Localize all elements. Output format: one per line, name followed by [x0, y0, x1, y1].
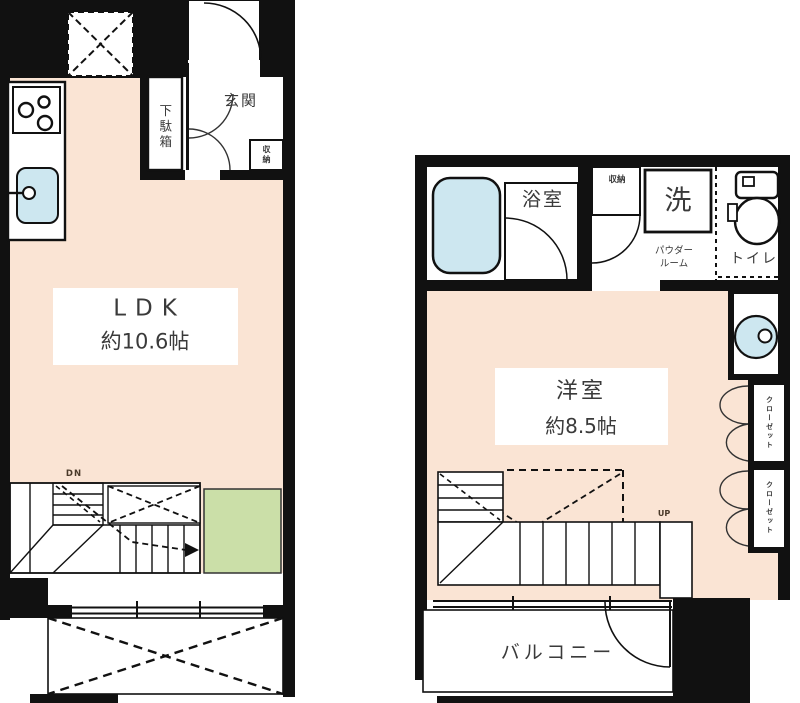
powder-room-label-1: パウダー	[655, 246, 693, 256]
entrance-door	[188, 0, 261, 66]
closet-1-label: クローゼット	[766, 396, 773, 450]
green-mat	[204, 489, 281, 573]
laundry-label: 洗	[665, 188, 692, 215]
bathtub	[433, 178, 500, 273]
toilet-bowl	[735, 198, 779, 244]
void-area	[30, 618, 283, 703]
toilet-label: トイレ	[730, 252, 778, 266]
shaft-hatch	[68, 12, 133, 76]
washbasin	[728, 288, 784, 380]
floor-plan-canvas: LDK 約10.6帖 玄関 下駄箱 収納 DN 浴室 収納 洗 パウダー ルーム…	[0, 0, 800, 703]
ldk-room-size: 約10.6帖	[101, 332, 190, 353]
stairs-down-label: DN	[66, 470, 82, 479]
powder-room-label-2: ルーム	[660, 259, 688, 269]
faucet	[23, 187, 35, 199]
closet-2-label: クローゼット	[766, 481, 773, 535]
kitchen-counter	[8, 82, 65, 240]
shoe-cabinet-label: 下駄箱	[158, 104, 171, 151]
entrance-storage-label: 収納	[262, 145, 270, 165]
balcony-label: バルコニー	[501, 644, 616, 663]
western-room-name: 洋室	[556, 381, 606, 403]
stairs-up-label: UP	[658, 510, 670, 518]
lower-floor-plan-drawing	[400, 0, 800, 703]
stairs-down	[10, 483, 200, 573]
storage-label: 収納	[608, 176, 625, 185]
western-room-size: 約8.5帖	[545, 416, 617, 436]
entrance-label: 玄関	[224, 94, 258, 109]
ldk-room-name: LDK	[104, 298, 186, 321]
bathroom-label: 浴室	[522, 191, 564, 210]
